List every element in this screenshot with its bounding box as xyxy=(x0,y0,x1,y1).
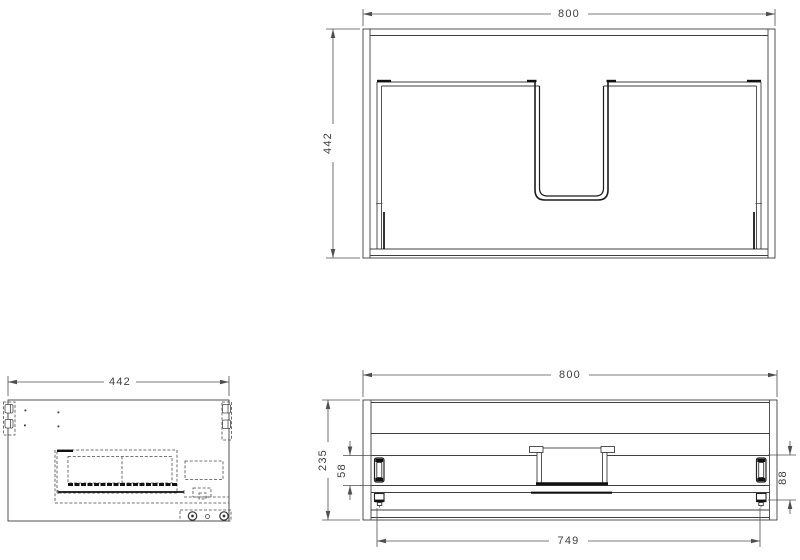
dim-drawer-height: 235 xyxy=(317,400,360,520)
dim-cabinet-depth: 442 xyxy=(8,376,229,396)
view-cabinet-front: 800 442 xyxy=(322,8,775,258)
drawing-sheet: 800 442 xyxy=(0,0,800,560)
dim-label-cabinet-height: 442 xyxy=(322,132,334,154)
dim-label-slide-offset-left: 58 xyxy=(336,463,348,478)
dim-cabinet-width: 800 xyxy=(363,8,775,26)
dim-cabinet-height: 442 xyxy=(322,29,360,258)
view-cabinet-side: 442 xyxy=(4,376,232,521)
dim-label-inner-width: 749 xyxy=(558,535,580,547)
dim-label-slide-offset-right: 88 xyxy=(777,470,789,485)
technical-drawing-canvas: 800 442 xyxy=(0,0,800,560)
cabinet-outline xyxy=(363,29,775,258)
dim-label-cabinet-depth: 442 xyxy=(109,376,131,388)
view-drawer-front: 800 235 58 88 749 xyxy=(317,369,796,547)
dim-label-drawer-width: 800 xyxy=(559,369,581,381)
dim-label-cabinet-width: 800 xyxy=(558,8,580,20)
dim-drawer-width: 800 xyxy=(363,369,777,397)
dim-label-drawer-height: 235 xyxy=(317,449,329,471)
